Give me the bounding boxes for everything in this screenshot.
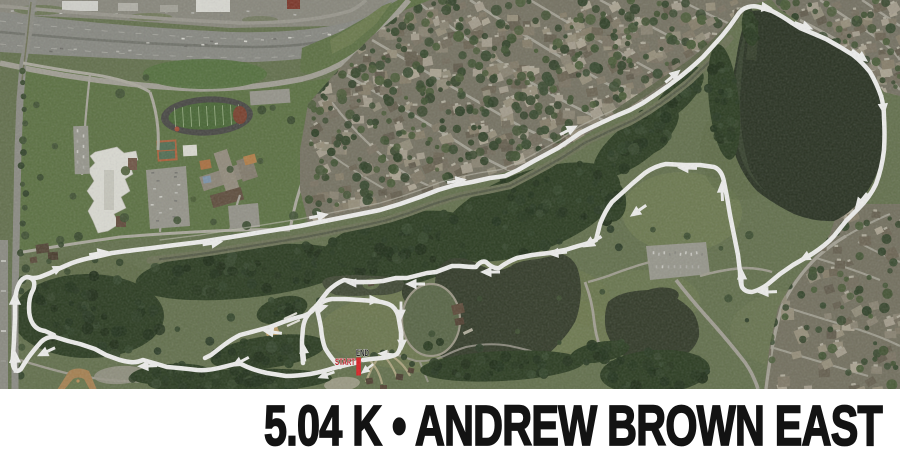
svg-text:5.04 K • ANDREW BROWN EAST: 5.04 K • ANDREW BROWN EAST	[264, 394, 883, 458]
